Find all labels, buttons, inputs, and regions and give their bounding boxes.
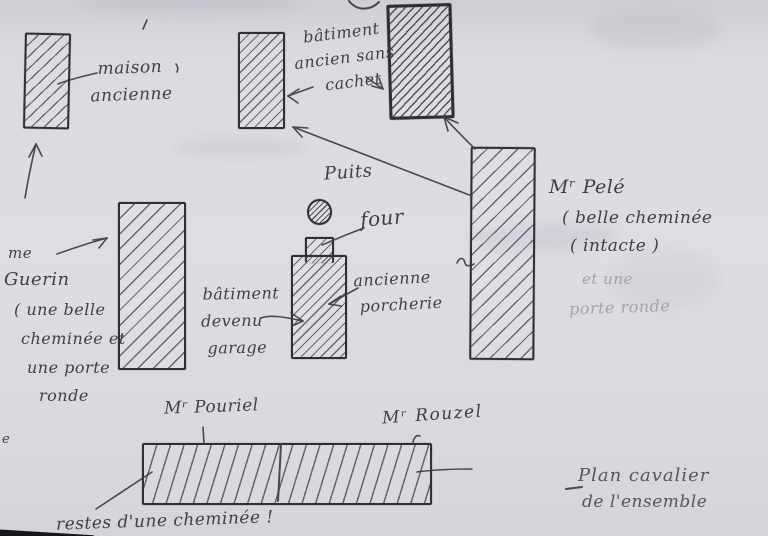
building-ancien-sans-cachet-top — [386, 3, 454, 120]
label-ancienne-porcherie: ancienne porcherie — [353, 264, 444, 321]
building-ancien-sans-cachet-left — [238, 32, 285, 129]
bleed-through-smudge — [80, 0, 300, 12]
building-maison-ancienne — [23, 33, 71, 130]
label-plan-cavalier: Plan cavalier de l'ensemble — [578, 462, 709, 516]
bleed-through-smudge — [590, 8, 720, 50]
label-mr-pele-note: Mʳ Pelé ( belle cheminée ( intacte ) et … — [549, 176, 712, 318]
label-mr-rouzel: Mʳ Rouzel — [381, 399, 483, 432]
apostrophe-mark — [143, 20, 147, 29]
comma-after-maison — [176, 64, 178, 72]
building-pouriel-rouzel — [142, 443, 432, 505]
label-batiment-ancien-sans-cachet: bâtiment ancien sans cachet — [290, 14, 399, 101]
bleed-through-smudge — [175, 138, 305, 156]
label-four: four — [359, 203, 405, 233]
label-maison-ancienne: maison ancienne — [89, 54, 173, 111]
tiny-mark-above-building — [413, 436, 420, 442]
building-pele — [469, 147, 535, 360]
tick-pouriel — [203, 427, 204, 444]
well-puits-circle — [307, 199, 332, 225]
label-restes-cheminee: restes d'une cheminée ! — [56, 504, 275, 536]
arrow-up-below-maison — [25, 144, 42, 198]
stray-letter-mark: e — [2, 427, 10, 453]
sketch-plan-page: maison ancienne bâtiment ancien sans cac… — [0, 0, 768, 536]
label-mr-pouriel: Mʳ Pouriel — [164, 392, 260, 421]
building-guerin — [118, 202, 186, 370]
arrow-pele-to-middle-building — [293, 127, 472, 196]
cutoff-stroke-top-edge — [349, 1, 379, 9]
label-mme-guerin-note: me Guerin ( une belle cheminée et une po… — [4, 243, 126, 406]
label-puits: Puits — [323, 158, 373, 187]
label-batiment-devenu-garage: bâtiment devenu garage — [202, 279, 280, 361]
arrow-pele-to-top-building — [444, 117, 475, 149]
building-porcherie — [291, 255, 347, 359]
